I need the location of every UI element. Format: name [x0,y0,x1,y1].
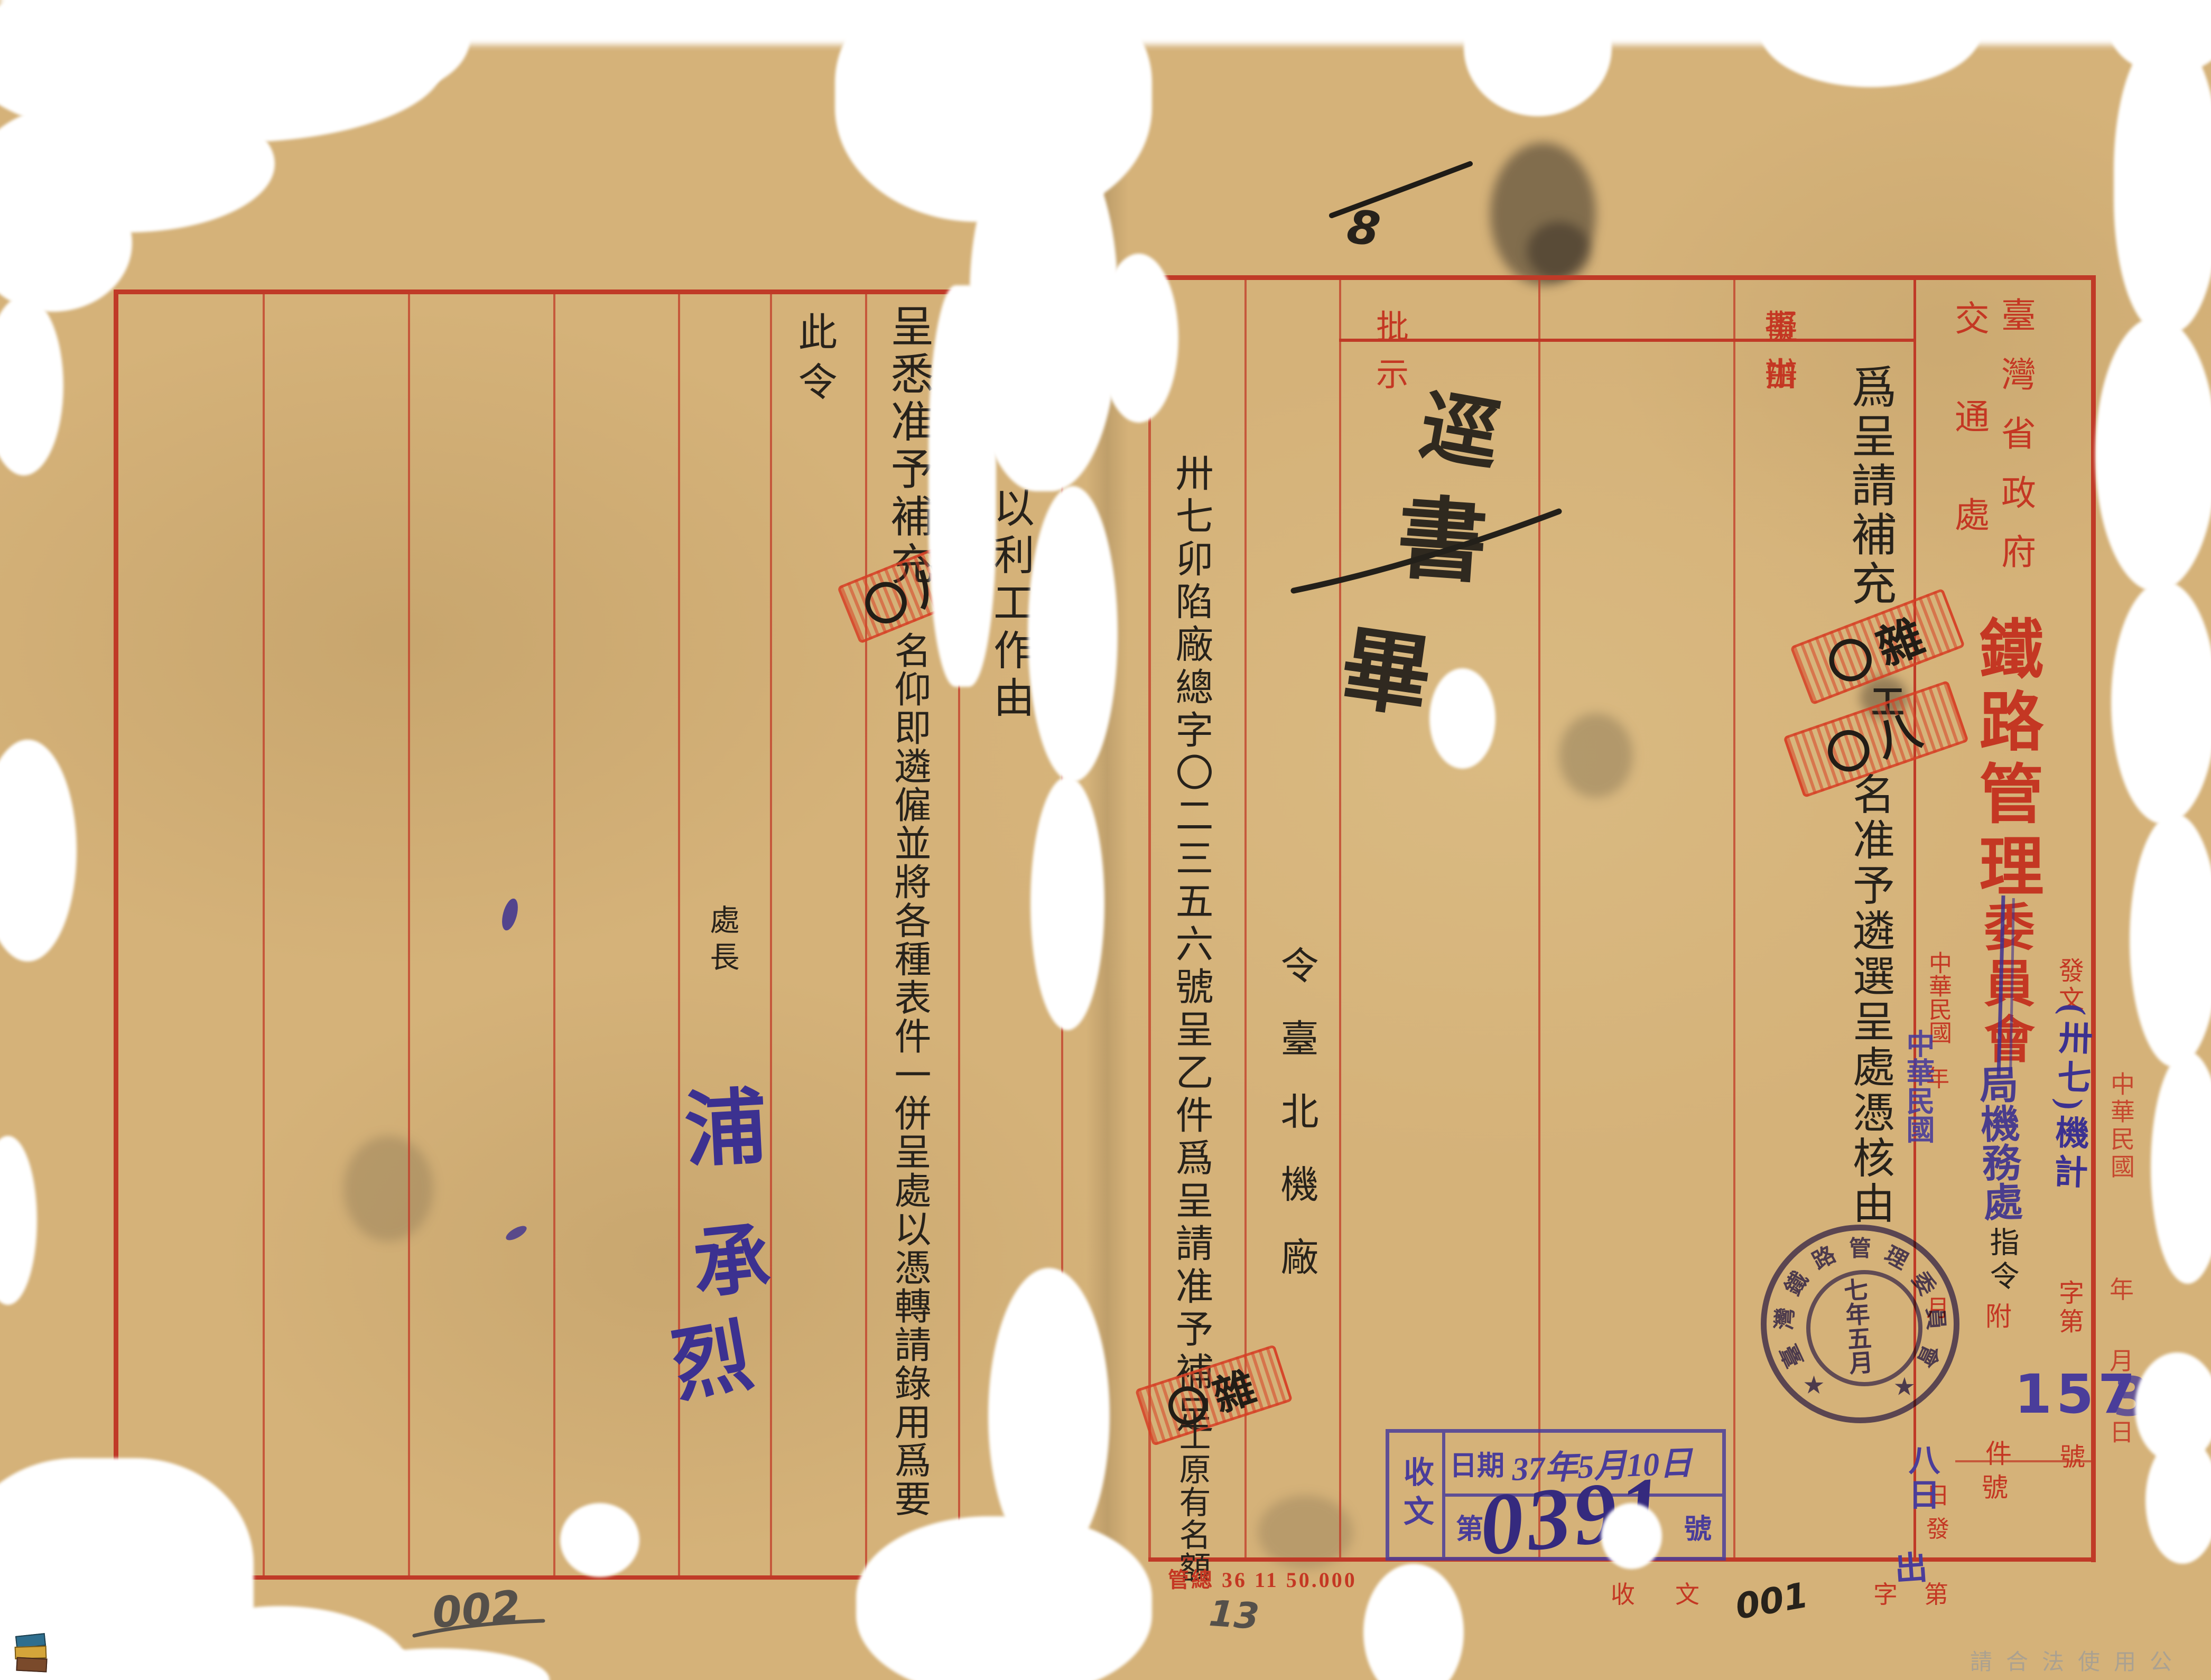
seal-ring-char: 臺 [1771,1340,1809,1374]
send-char: 發 [1926,1510,1949,1544]
grid-line [1339,280,1341,1558]
date-handwriting-day: 八日 [1906,1443,1937,1513]
seal-ring-char: ★ [1798,1369,1829,1402]
top-pen-stroke [1321,148,1480,222]
scanned-document: 以利工作由 呈悉准予補充 〇八 名仰即遴僱並將各種表件一併呈處以憑轉請錄用爲要 … [0,0,2211,1680]
letterhead-correction-handwriting: 局機務處 [1975,1064,2019,1221]
header-label: 事由 [1733,300,1913,395]
grid-line [1148,275,2095,280]
grid-line [1538,280,1540,1558]
approval-cursive-char: 畢 [1334,594,1441,735]
margin-day: 日 [2110,1413,2134,1448]
watermark-text: 請合法使用公開之影像 [1970,1644,2211,1680]
seal-ring-char: 委 [1906,1264,1945,1300]
ink-smudge [1527,222,1591,280]
attachment-jian: 件 [1985,1433,2012,1471]
letterhead-government: 臺灣省政府 [1998,297,2032,593]
footer-receive-label: 收文 [1611,1575,1740,1610]
receipt-side-cell: 收文 [1389,1433,1445,1557]
grid-line [1148,280,1151,1558]
header-cell-subject: 事由 [1733,300,1913,395]
document-type: 指令 [1987,1227,2017,1294]
seal-ring-char: 鐵 [1776,1264,1815,1300]
receipt-side-label: 收文 [1400,1456,1431,1534]
margin-month: 月 [2110,1342,2134,1377]
date-stamp-roc: 中華民國 [1903,1029,1932,1143]
margin-roc: 中華民國 [2108,1071,2133,1181]
grid-line [263,294,265,1575]
seal-inner-date: 七年五月 [1841,1277,1872,1376]
letterhead-organization: 鐵路管理 [1973,615,2037,905]
seal-ring-char: 理 [1880,1237,1915,1276]
round-official-seal: 臺灣鐵路管理委員會★★ 七年五月 [1761,1225,1959,1423]
reply-text-part1: 呈悉准予補充 [886,304,930,589]
receipt-number-unit: 號 [1684,1507,1712,1546]
dispatch-di: 第 [2059,1301,2084,1338]
stain [1559,713,1633,798]
subject-text-part1: 爲呈請補充 [1847,363,1892,609]
reference-text-part2: 工原有名額 [1176,1420,1208,1584]
seal-ring-char: 員 [1920,1306,1954,1331]
grid-line [865,294,867,1575]
seal-ring-char: ★ [1889,1370,1920,1404]
pencil-underline [407,1611,555,1648]
attachment-fu: 附 [1985,1295,2012,1333]
order-recipient-text: 令臺北機廠 [1277,946,1315,1310]
approval-stroke [1284,497,1569,608]
seal-ring-char: 會 [1911,1340,1949,1374]
signer-title: 處長 [707,904,737,978]
footer-zidi-label: 字第 [1873,1575,1975,1610]
attachment-hao: 號 [1982,1467,2008,1505]
margin-year: 年 [2110,1271,2134,1305]
grid-line [408,294,410,1575]
grid-line [114,290,118,1579]
stain [343,1136,433,1242]
subject-text-part2: 名准予遴選呈處憑核由 [1848,772,1891,1227]
seal-ring-char: 管 [1849,1231,1871,1263]
signature-char: 浦 [681,1060,769,1183]
dispatch-code-handwriting: (卅七)機計 [2050,1003,2091,1194]
archive-logo-icon [14,1631,48,1676]
grid-line [770,294,772,1575]
reply-text-part2: 名仰即遴僱並將各種表件一併呈處以憑轉請錄用爲要 [890,631,927,1518]
reference-text-part1: 卅七卯陷廠總字〇二三五六號呈乙件爲呈請准予補足 [1172,453,1210,1438]
seal-ring-char: 路 [1806,1237,1841,1276]
grid-line [1733,280,1735,1558]
pencil-number-right: 13 [1207,1593,1260,1638]
grid-line [553,294,555,1575]
closing-text: 此令 [794,312,833,411]
letterhead-department: 交通處 [1951,300,1986,595]
printer-imprint: 管總 36 11 50.000 [1168,1563,1357,1593]
grid-line [114,290,1033,294]
dispatch-hao: 號 [2060,1436,2085,1473]
seal-ring-char: 灣 [1767,1306,1800,1331]
